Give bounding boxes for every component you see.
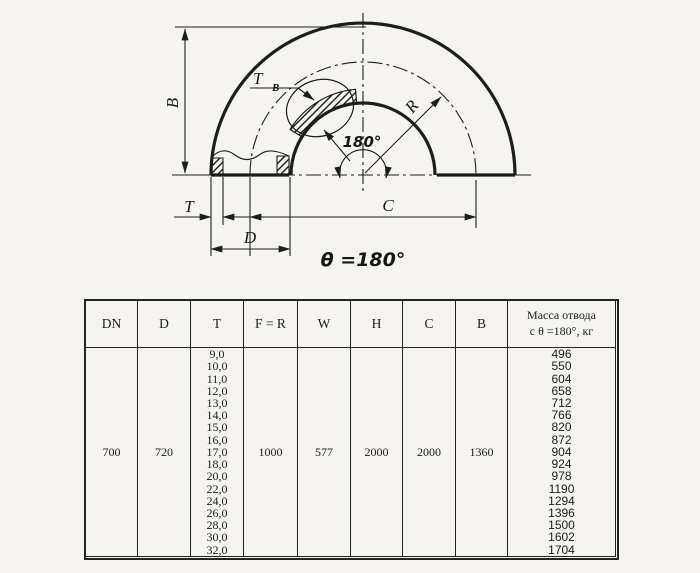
wall-hatch-band	[290, 89, 357, 137]
elbow-drawing-180deg: T B B R 180° T	[0, 0, 700, 296]
mass-header-line2: с θ =180°, кг	[530, 324, 593, 338]
cell-h: 2000	[351, 348, 403, 557]
dimensions-table: DN D T F = R W H C B Масса отводас θ =18…	[85, 300, 616, 557]
data-row: 700 720 9,0 10,0 11,0 12,0 13,0 14,0 15,…	[86, 348, 616, 557]
cell-d: 720	[138, 348, 191, 557]
col-header-c: C	[403, 301, 456, 348]
col-header-w: W	[298, 301, 351, 348]
mass-header-line1: Масса отвода	[527, 308, 596, 322]
dim-label-tb: T	[253, 69, 264, 88]
dim-label-b: B	[163, 97, 182, 108]
dim-label-tb-sub: B	[271, 82, 279, 94]
angle-label: 180°	[343, 133, 382, 151]
col-header-t: T	[191, 301, 244, 348]
cell-mass-values: 496 550 604 658 712 766 820 872 904 924 …	[508, 348, 616, 557]
wall-hatch-right	[277, 156, 289, 175]
dim-label-c: C	[382, 196, 394, 215]
col-header-h: H	[351, 301, 403, 348]
col-header-fr: F = R	[244, 301, 298, 348]
cell-t-values: 9,0 10,0 11,0 12,0 13,0 14,0 15,0 16,0 1…	[191, 348, 244, 557]
dim-t: T	[174, 177, 251, 256]
dim-label-d: D	[243, 228, 257, 247]
dim-label-t: T	[184, 197, 195, 216]
cell-dn: 700	[86, 348, 138, 557]
cell-w: 577	[298, 348, 351, 557]
col-header-mass: Масса отводас θ =180°, кг	[508, 301, 616, 348]
col-header-d: D	[138, 301, 191, 348]
col-header-dn: DN	[86, 301, 138, 348]
cell-c: 2000	[403, 348, 456, 557]
cell-fr: 1000	[244, 348, 298, 557]
wall-hatch-left	[211, 158, 223, 175]
theta-caption: θ =180°	[321, 249, 406, 271]
cell-b: 1360	[456, 348, 508, 557]
header-row: DN D T F = R W H C B Масса отводас θ =18…	[86, 301, 616, 348]
page: T B B R 180° T	[0, 0, 700, 573]
col-header-b: B	[456, 301, 508, 348]
